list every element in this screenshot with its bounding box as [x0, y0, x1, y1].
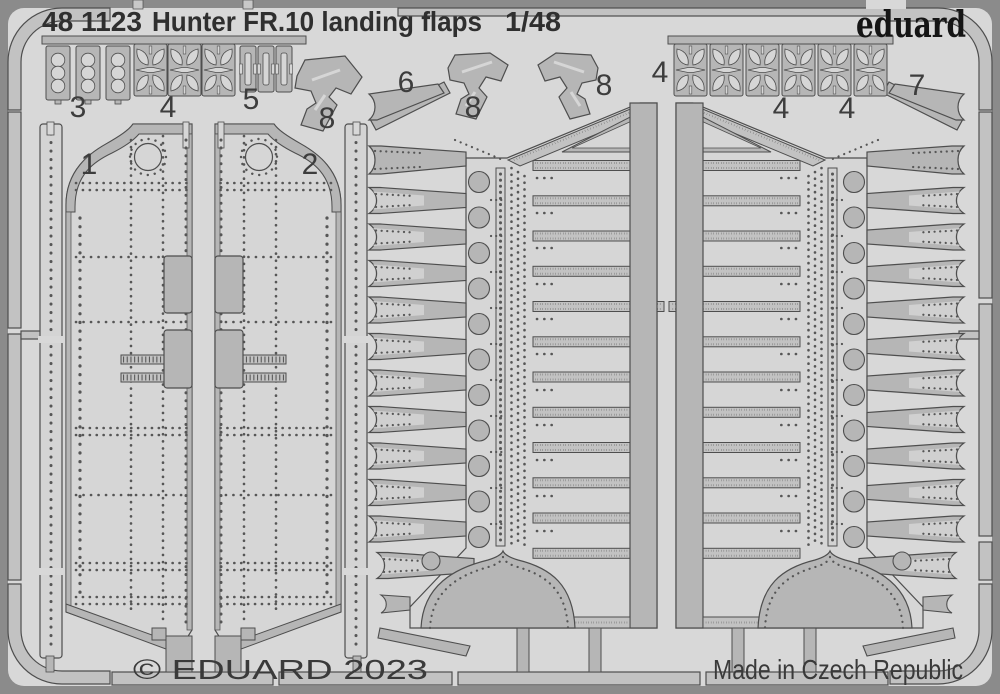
- copyright-text: © EDUARD 2023: [133, 654, 428, 685]
- part-label-4b: 4: [652, 56, 669, 89]
- part-label-8c: 8: [596, 69, 613, 102]
- part-label-7: 7: [909, 69, 926, 102]
- product-code: 48 1123: [42, 6, 142, 37]
- part-label-3: 3: [70, 91, 87, 124]
- part-label-8b: 8: [465, 91, 482, 124]
- part-2-flap-skin: [215, 122, 369, 672]
- sheet-header: 48 1123 Hunter FR.10 landing flaps 1/48: [42, 6, 561, 37]
- fret-drawing: 1 2 3 4 5 8 6 8 8 4 4 4 7 48 1123 Hunter…: [0, 0, 1000, 694]
- part-label-8a: 8: [319, 102, 336, 135]
- part-label-6: 6: [398, 66, 415, 99]
- part-label-5: 5: [243, 83, 260, 116]
- part-label-4c: 4: [773, 92, 790, 125]
- part-1-flap-skin: [38, 122, 192, 672]
- photoetch-sheet-photo: 1 2 3 4 5 8 6 8 8 4 4 4 7 48 1123 Hunter…: [0, 0, 1000, 694]
- scale: 1/48: [505, 6, 561, 37]
- part-label-1: 1: [81, 148, 98, 181]
- part-label-4d: 4: [839, 92, 856, 125]
- product-name: Hunter FR.10 landing flaps: [152, 6, 482, 37]
- made-in-text: Made in Czech Republic: [713, 654, 963, 685]
- brand-logo: eduard: [856, 4, 966, 46]
- part-label-4a: 4: [160, 91, 177, 124]
- part-label-2: 2: [302, 148, 319, 181]
